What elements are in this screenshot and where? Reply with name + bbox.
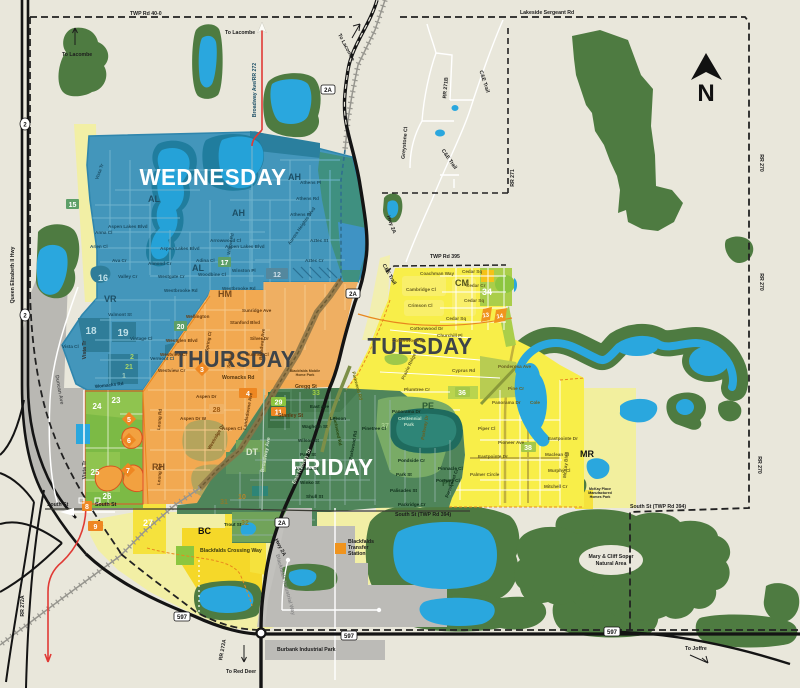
svg-text:AH: AH	[232, 208, 245, 218]
svg-text:9: 9	[94, 524, 98, 531]
svg-text:Cedar Sq: Cedar Sq	[446, 316, 466, 321]
svg-text:Valmont St: Valmont St	[108, 312, 132, 317]
svg-text:Parkridge Cr: Parkridge Cr	[398, 502, 426, 507]
svg-text:Park St: Park St	[396, 472, 412, 477]
svg-text:Cambridge Cl: Cambridge Cl	[406, 287, 436, 292]
svg-text:Vista Tr: Vista Tr	[82, 341, 88, 360]
svg-text:Mitchell Cr: Mitchell Cr	[544, 484, 568, 489]
svg-text:South St (TWP Rd 394): South St (TWP Rd 394)	[395, 512, 451, 518]
svg-text:N: N	[697, 80, 714, 107]
svg-text:Aztec Cr: Aztec Cr	[305, 258, 324, 263]
svg-text:Athens Rd: Athens Rd	[296, 196, 319, 201]
svg-text:Cottonwood Dr: Cottonwood Dr	[392, 338, 425, 343]
svg-text:27: 27	[143, 518, 153, 528]
svg-text:Natural Area: Natural Area	[596, 561, 627, 567]
svg-text:Park St: Park St	[300, 452, 316, 457]
svg-text:Plumtree Cr: Plumtree Cr	[404, 387, 430, 392]
svg-text:3: 3	[200, 367, 204, 374]
svg-text:Cottonwood Dr: Cottonwood Dr	[410, 326, 443, 331]
svg-text:Wellington: Wellington	[186, 314, 210, 319]
svg-text:Westview Cr: Westview Cr	[160, 352, 187, 357]
svg-text:Westbrooke Rd: Westbrooke Rd	[222, 286, 256, 291]
svg-text:15: 15	[69, 202, 77, 209]
svg-text:To Lacombe: To Lacombe	[62, 52, 92, 58]
svg-text:Palisades St: Palisades St	[390, 488, 418, 493]
svg-text:Shull St: Shull St	[306, 494, 324, 499]
svg-text:MR: MR	[580, 449, 594, 459]
svg-text:597: 597	[607, 630, 618, 636]
svg-text:RR 271: RR 271	[510, 169, 516, 187]
svg-text:Broadway Ave/RR 272: Broadway Ave/RR 272	[252, 63, 258, 118]
svg-text:Westbrooke Rd: Westbrooke Rd	[164, 288, 198, 293]
svg-text:17: 17	[221, 260, 229, 267]
svg-text:Vista Cl: Vista Cl	[62, 344, 79, 349]
svg-text:South St: South St	[47, 502, 69, 508]
svg-text:Park: Park	[404, 422, 414, 427]
svg-text:5: 5	[127, 417, 131, 424]
svg-text:Station: Station	[348, 551, 366, 557]
svg-text:TWP Rd 40-0: TWP Rd 40-0	[130, 11, 162, 17]
svg-text:To Joffre: To Joffre	[685, 646, 707, 652]
svg-text:Anna Cl: Anna Cl	[95, 230, 112, 235]
svg-text:AL: AL	[148, 194, 160, 204]
svg-text:Aspen Dr W: Aspen Dr W	[180, 416, 207, 421]
svg-text:2: 2	[130, 354, 134, 361]
svg-text:Pinetree Cl: Pinetree Cl	[362, 426, 386, 431]
svg-text:Panorama Dr: Panorama Dr	[392, 409, 421, 414]
svg-text:Palmer Circle: Palmer Circle	[470, 472, 500, 477]
svg-text:28: 28	[213, 407, 221, 414]
svg-text:Aspen Lakes Blvd: Aspen Lakes Blvd	[160, 246, 200, 251]
svg-text:23: 23	[112, 396, 121, 405]
svg-text:Waghorn St: Waghorn St	[302, 424, 328, 429]
svg-text:Winko St: Winko St	[300, 480, 320, 485]
svg-text:RR 270: RR 270	[758, 273, 764, 291]
svg-text:31: 31	[220, 499, 228, 506]
svg-text:PE: PE	[422, 401, 434, 411]
svg-text:2A: 2A	[324, 88, 332, 94]
svg-text:Almond Cr: Almond Cr	[148, 261, 172, 266]
svg-text:Centennial: Centennial	[398, 416, 421, 421]
svg-text:Sunridge Ave: Sunridge Ave	[242, 308, 272, 313]
svg-text:16: 16	[98, 273, 108, 283]
svg-text:Westgate Cr: Westgate Cr	[158, 274, 185, 279]
svg-text:RR 270: RR 270	[758, 154, 764, 172]
svg-text:2A: 2A	[349, 292, 357, 298]
svg-text:Aspen Dr: Aspen Dr	[196, 394, 217, 399]
svg-text:Aspen Cl: Aspen Cl	[222, 426, 242, 431]
svg-text:South St: South St	[95, 502, 117, 508]
svg-text:Queen Elizabeth II Hwy: Queen Elizabeth II Hwy	[10, 246, 16, 303]
svg-text:597: 597	[177, 615, 188, 621]
svg-text:597: 597	[344, 634, 355, 640]
svg-text:Homes Park: Homes Park	[590, 495, 611, 499]
svg-text:34: 34	[482, 287, 492, 297]
svg-text:19: 19	[117, 328, 129, 339]
svg-text:Winston Pl: Winston Pl	[232, 268, 256, 273]
svg-text:Mary & Cliff Soper: Mary & Cliff Soper	[589, 554, 634, 560]
svg-text:24: 24	[93, 402, 102, 411]
svg-text:25: 25	[91, 468, 100, 477]
svg-text:To Red Deer: To Red Deer	[226, 669, 256, 675]
svg-text:Vista Tr: Vista Tr	[82, 461, 88, 480]
svg-text:Valley Cr: Valley Cr	[118, 274, 138, 279]
svg-text:Ponderosa Ave: Ponderosa Ave	[498, 364, 532, 369]
svg-text:7: 7	[126, 468, 130, 475]
svg-text:Arlen Cl: Arlen Cl	[90, 244, 108, 249]
svg-text:Leeson: Leeson	[330, 416, 346, 421]
svg-text:Blackfalds Crossing Way: Blackfalds Crossing Way	[200, 548, 262, 554]
svg-text:VR: VR	[104, 294, 117, 304]
svg-text:Stanford Blvd: Stanford Blvd	[230, 320, 260, 325]
svg-text:36: 36	[458, 390, 466, 397]
svg-text:Lakeside Sergeant Rd: Lakeside Sergeant Rd	[520, 10, 574, 16]
svg-text:Westglen Blvd: Westglen Blvd	[166, 338, 198, 343]
svg-text:Aspen Lakes Blvd: Aspen Lakes Blvd	[108, 224, 148, 229]
svg-text:38: 38	[524, 445, 532, 452]
svg-text:1: 1	[122, 373, 126, 380]
svg-text:Coachman Way: Coachman Way	[420, 271, 454, 276]
svg-text:Home Park: Home Park	[296, 373, 315, 377]
svg-text:20: 20	[177, 324, 185, 331]
svg-text:2A: 2A	[278, 521, 286, 527]
svg-text:Cyprus Rd: Cyprus Rd	[452, 368, 475, 373]
svg-text:18: 18	[85, 326, 97, 337]
svg-text:Adina Cl: Adina Cl	[196, 258, 215, 263]
svg-text:Panorama Dr: Panorama Dr	[492, 400, 521, 405]
svg-text:Arrowwood Cl: Arrowwood Cl	[210, 238, 241, 243]
svg-text:Wilson St: Wilson St	[298, 438, 319, 443]
svg-text:Aztec St: Aztec St	[310, 238, 329, 243]
svg-text:Burbank Industrial Park: Burbank Industrial Park	[277, 647, 336, 653]
svg-text:Trout St: Trout St	[224, 522, 242, 527]
svg-text:To Lacombe: To Lacombe	[225, 30, 255, 36]
svg-text:Churchill Pl: Churchill Pl	[437, 333, 463, 338]
svg-text:WEDNESDAY: WEDNESDAY	[140, 164, 287, 190]
svg-text:DT: DT	[246, 447, 258, 457]
svg-text:6: 6	[127, 438, 131, 445]
svg-text:Cedar Sq: Cedar Sq	[462, 269, 482, 274]
svg-text:East Ave: East Ave	[310, 404, 330, 409]
svg-text:Pine Cr: Pine Cr	[508, 386, 524, 391]
svg-text:8: 8	[85, 504, 89, 511]
svg-text:Gregg St: Gregg St	[295, 384, 317, 390]
svg-text:Pondside Cr: Pondside Cr	[398, 458, 425, 463]
svg-text:Eastpointe Dr: Eastpointe Dr	[548, 436, 578, 441]
svg-text:Crimson Cl: Crimson Cl	[408, 303, 433, 308]
svg-text:TWP Rd 395: TWP Rd 395	[430, 254, 460, 260]
svg-text:Stanley St: Stanley St	[278, 413, 303, 419]
svg-text:South St (TWP Rd 394): South St (TWP Rd 394)	[630, 504, 686, 510]
svg-text:Piper Cl: Piper Cl	[478, 426, 495, 431]
svg-text:12: 12	[273, 272, 281, 279]
svg-text:33: 33	[312, 390, 320, 397]
svg-text:Womacks Rd: Womacks Rd	[222, 375, 254, 381]
svg-text:Pioneer Ave: Pioneer Ave	[498, 440, 525, 445]
svg-text:Athens Pl: Athens Pl	[300, 180, 321, 185]
svg-text:29: 29	[275, 400, 283, 407]
svg-text:10: 10	[238, 494, 246, 501]
svg-text:Eastpointe Dr: Eastpointe Dr	[478, 454, 508, 459]
svg-text:32: 32	[241, 520, 249, 527]
svg-text:Portway Cl: Portway Cl	[436, 478, 460, 483]
svg-text:RR 272A: RR 272A	[20, 595, 26, 617]
svg-text:Westview Cr: Westview Cr	[158, 368, 185, 373]
svg-text:Cedar Sq: Cedar Sq	[464, 298, 484, 303]
svg-text:Ava Cr: Ava Cr	[112, 258, 127, 263]
svg-text:Vintage Cl: Vintage Cl	[130, 336, 152, 341]
svg-text:Cedar Cr: Cedar Cr	[466, 283, 486, 288]
svg-text:RR 270: RR 270	[756, 456, 762, 474]
svg-text:Indiana St: Indiana St	[296, 466, 318, 471]
svg-text:BC: BC	[198, 526, 211, 536]
svg-text:21: 21	[125, 364, 133, 371]
svg-text:THURSDAY: THURSDAY	[175, 346, 296, 372]
svg-text:Cole: Cole	[530, 400, 540, 405]
svg-text:Woodbine Cl: Woodbine Cl	[198, 272, 226, 277]
svg-text:26: 26	[103, 492, 112, 501]
